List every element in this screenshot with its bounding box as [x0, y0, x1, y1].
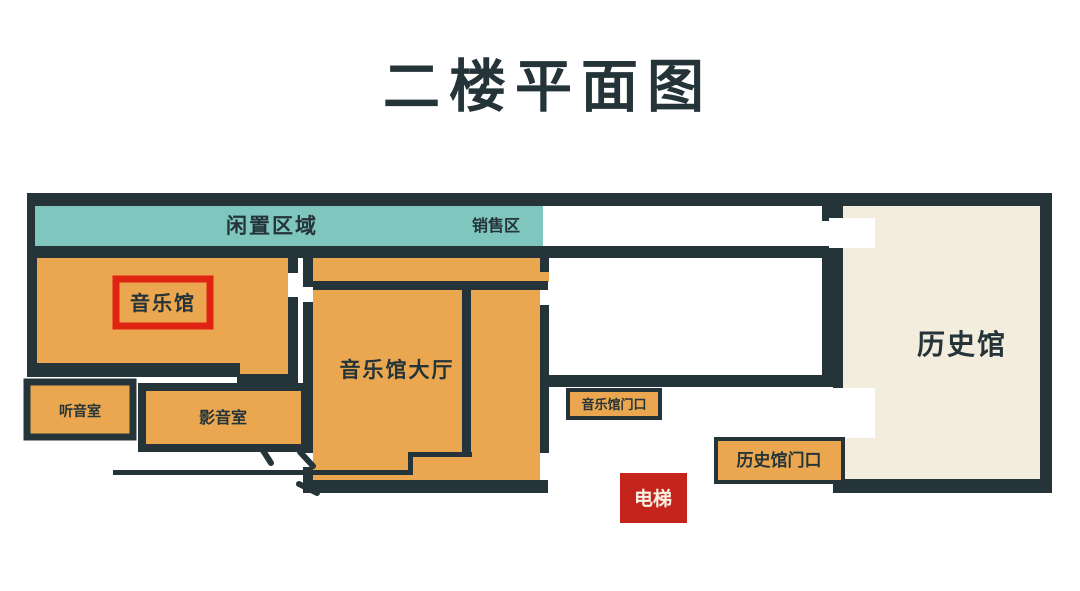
- music-hall-left-wall: [27, 246, 37, 377]
- history-left-wall-top: [833, 206, 843, 218]
- history-bottom-wall: [833, 479, 1052, 493]
- sales-zone-label: 销售区: [472, 216, 520, 235]
- outer-top-wall: [27, 193, 1052, 206]
- door-swing-mark: [300, 452, 313, 466]
- lobby-inner-vertical-wall: [462, 290, 471, 455]
- outer-right-wall: [1040, 193, 1052, 492]
- sales-room-bottom-wall: [543, 375, 833, 387]
- history-top-door-opening: [829, 218, 875, 248]
- history-hall-label: 历史馆: [917, 328, 1007, 361]
- history-left-wall-mid: [833, 248, 843, 388]
- music-hall-label: 音乐馆: [130, 291, 196, 315]
- idle-zone-label: 闲置区域: [226, 214, 318, 238]
- elevator-label: 电梯: [634, 487, 672, 510]
- floor-plan-page: 二楼平面图 闲置区域 销售区 音乐馆 音乐馆大厅 听音室 影音室 音乐馆门口 历…: [0, 0, 1080, 591]
- main-horizontal-wall: [27, 246, 833, 258]
- sales-room-right-wall: [822, 246, 833, 387]
- lobby-left-wall-upper: [303, 246, 313, 287]
- lobby-right-wall-upper: [540, 258, 549, 272]
- history-hall-entrance-label: 历史馆门口: [737, 450, 822, 470]
- music-hall-entrance-label: 音乐馆门口: [581, 397, 646, 412]
- history-entrance-door-opening: [828, 388, 875, 438]
- av-room-label: 影音室: [199, 408, 247, 427]
- floor-plan-canvas: 二楼平面图 闲置区域 销售区 音乐馆 音乐馆大厅 听音室 影音室 音乐馆门口 历…: [0, 0, 1080, 591]
- music-hall-room-step: [237, 360, 290, 375]
- corridor-wall-stub: [822, 193, 833, 221]
- page-title: 二楼平面图: [383, 56, 713, 119]
- lobby-door-gap: [540, 272, 549, 282]
- listening-room-label: 听音室: [59, 403, 101, 420]
- lobby-bottom-wall: [303, 480, 548, 493]
- music-hall-right-wall-lower: [288, 297, 298, 377]
- music-hall-right-wall-upper: [288, 246, 298, 273]
- music-hall-lobby-label: 音乐馆大厅: [340, 358, 455, 382]
- lobby-inner-horizontal-wall: [313, 281, 548, 290]
- lobby-step-line-top: [408, 452, 472, 457]
- sales-inner-room: [549, 258, 822, 375]
- lower-corridor-line: [113, 470, 413, 475]
- music-hall-bottom-wall: [27, 363, 240, 377]
